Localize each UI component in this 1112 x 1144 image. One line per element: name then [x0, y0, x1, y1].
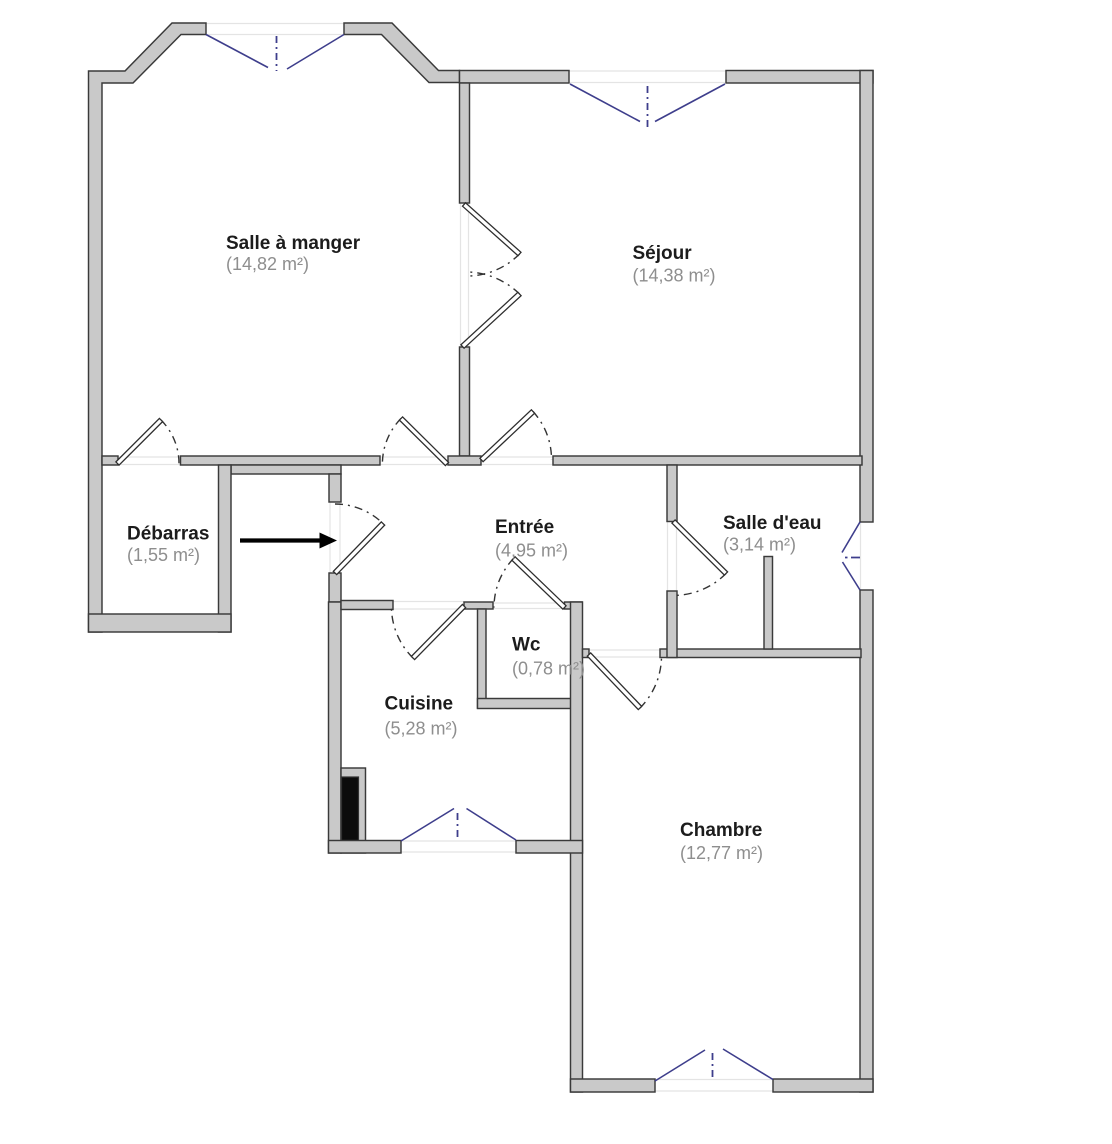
svg-text:Cuisine: Cuisine — [385, 694, 454, 715]
svg-text:Débarras: Débarras — [127, 524, 209, 545]
svg-text:Séjour: Séjour — [633, 243, 693, 264]
svg-text:(4,95 m²): (4,95 m²) — [495, 541, 568, 561]
svg-text:(3,14 m²): (3,14 m²) — [723, 535, 796, 555]
svg-text:Wc: Wc — [512, 635, 541, 656]
svg-text:(0,78 m²): (0,78 m²) — [512, 659, 585, 679]
svg-text:(5,28 m²): (5,28 m²) — [385, 719, 458, 739]
svg-text:Entrée: Entrée — [495, 517, 554, 538]
svg-text:(14,38 m²): (14,38 m²) — [633, 266, 716, 286]
svg-text:Chambre: Chambre — [680, 820, 762, 841]
svg-text:(12,77 m²): (12,77 m²) — [680, 843, 763, 863]
svg-text:(14,82 m²): (14,82 m²) — [226, 254, 309, 274]
svg-text:Salle à manger: Salle à manger — [226, 233, 361, 254]
svg-text:Salle d'eau: Salle d'eau — [723, 513, 822, 534]
svg-text:(1,55 m²): (1,55 m²) — [127, 545, 200, 565]
